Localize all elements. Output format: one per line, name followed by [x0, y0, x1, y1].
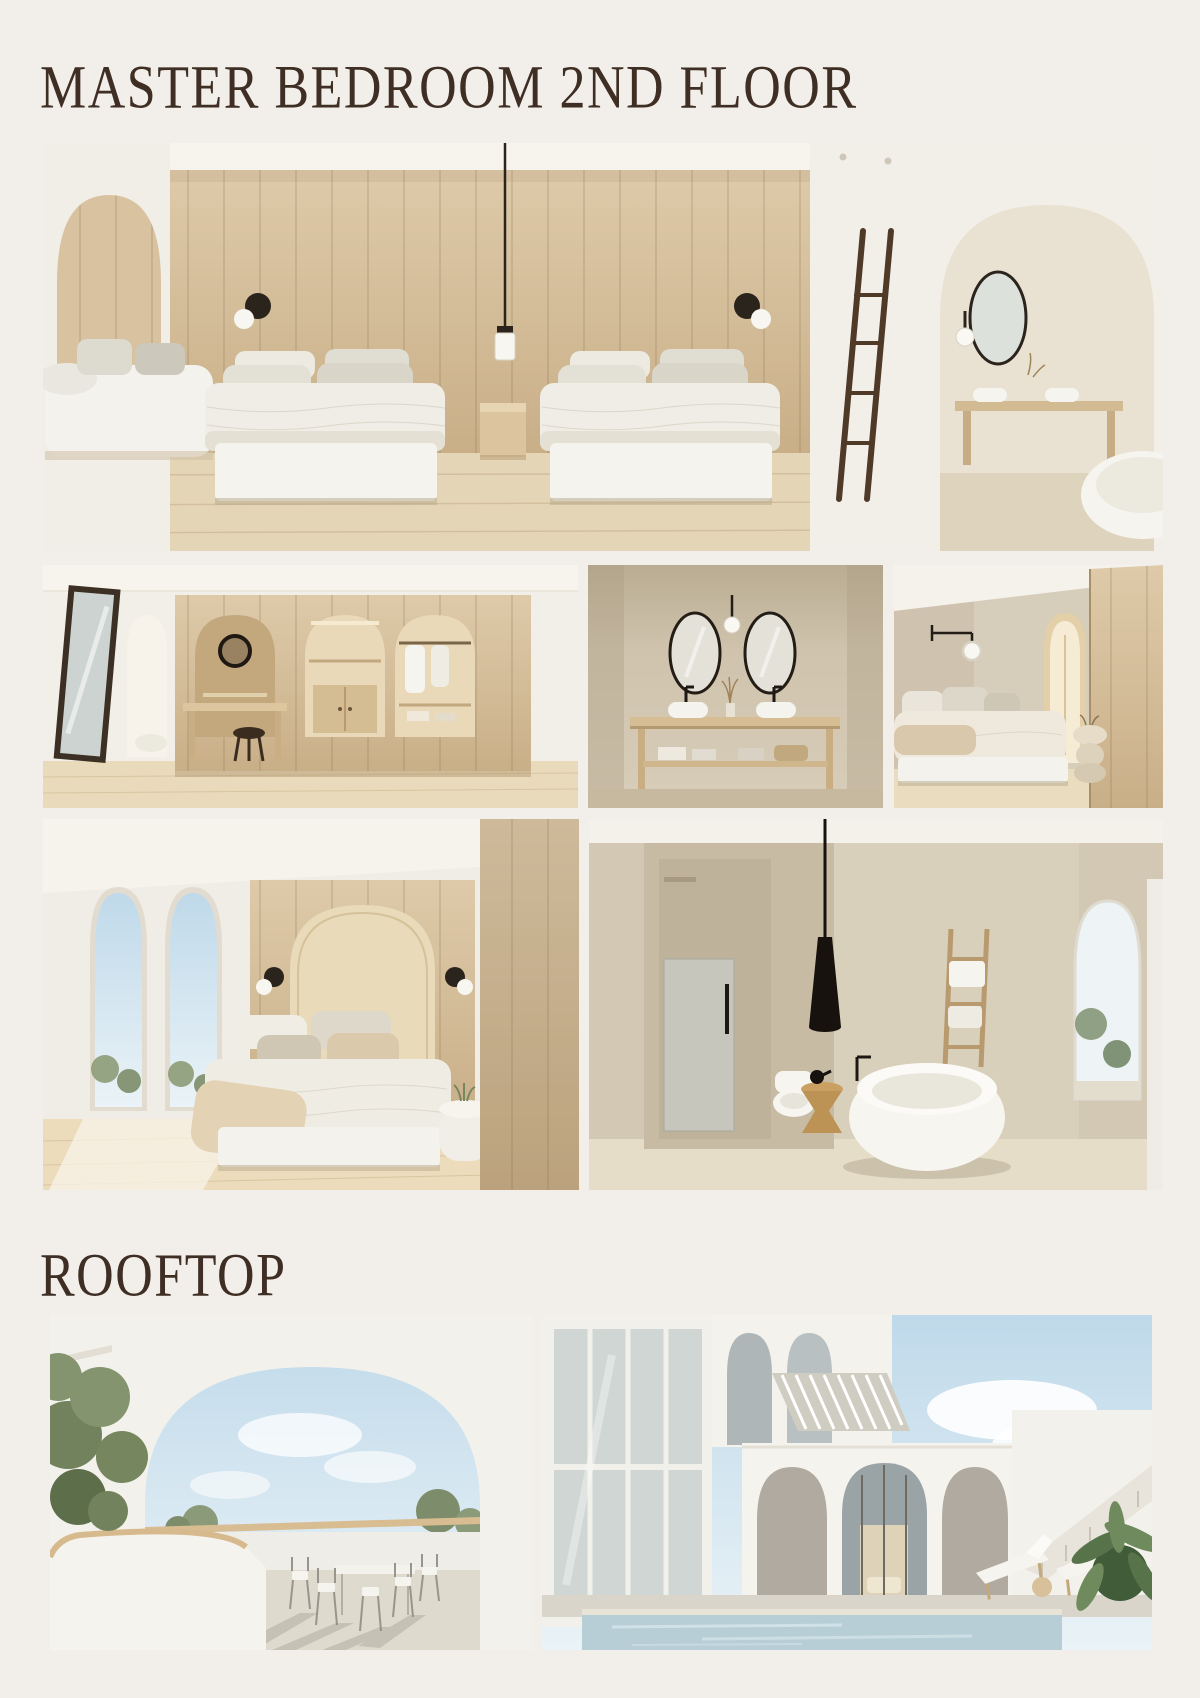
pool: [582, 1609, 1062, 1650]
floor: [588, 789, 883, 808]
dressing-scene: [43, 565, 578, 808]
basin: [1045, 388, 1079, 402]
ceiling: [43, 565, 578, 591]
stucco-wall: [588, 565, 883, 808]
vanity-counter: [955, 401, 1123, 411]
arched-doorway: [127, 615, 167, 757]
oval-mirror-left: [670, 613, 720, 693]
upper-arches: [712, 1315, 910, 1447]
render-dressing-room: [43, 565, 578, 808]
bed-right: [540, 349, 780, 505]
presentation-page: MASTER BEDROOM 2ND FLOOR: [0, 0, 1200, 1698]
round-mirror: [220, 636, 250, 666]
stone-arch: [757, 1467, 827, 1615]
foreground-wood-wall: [480, 819, 579, 1190]
wardrobe-cabinet: [175, 595, 531, 777]
planter-wall: [50, 1531, 266, 1650]
render-bedroom-arched-windows: [43, 819, 579, 1190]
glass-door-arch: [842, 1463, 927, 1615]
hanging-robe: [405, 645, 425, 693]
arched-garden-window: [1075, 901, 1140, 1099]
basket: [774, 745, 808, 761]
hero-scene: [43, 143, 1163, 551]
oval-mirror: [970, 272, 1026, 364]
towel: [948, 1006, 982, 1028]
folded-towels: [658, 747, 686, 760]
folded-towels: [692, 749, 716, 760]
bathroom-scene: [589, 819, 1163, 1190]
vanity-desk: [183, 703, 287, 711]
side-table: [1032, 1577, 1052, 1597]
vanity-niche: [195, 615, 275, 737]
section-title-master-bedroom: MASTER BEDROOM 2ND FLOOR: [40, 58, 858, 119]
glazed-facade: [542, 1315, 712, 1627]
render-rooftop-terrace: [50, 1315, 532, 1650]
archbed-scene: [43, 819, 579, 1190]
arched-pavilion: [742, 1443, 1012, 1615]
render-rooftop-pool: [542, 1315, 1152, 1650]
arched-window-left: [90, 887, 147, 1111]
arch-edge: [1147, 879, 1163, 1190]
wall-sconce-globe: [956, 328, 974, 346]
render-hero-twin-bedroom: [43, 143, 1163, 551]
stone-arch: [942, 1467, 1008, 1615]
towel: [949, 961, 985, 987]
folded-towels: [738, 748, 764, 760]
ceiling: [589, 819, 1163, 843]
terrace-scene: [50, 1315, 532, 1650]
bedcorner-scene: [894, 565, 1163, 808]
round-bathtub: [843, 1057, 1011, 1179]
basin: [973, 388, 1007, 402]
arched-bathroom-opening: [810, 143, 1163, 551]
nightstand: [480, 403, 526, 460]
pool-scene: [542, 1315, 1152, 1650]
bed-left: [205, 349, 445, 505]
shower-glass: [664, 959, 734, 1131]
hanging-robe: [431, 645, 449, 687]
oval-mirror-right: [745, 613, 795, 693]
shower-partition: [644, 843, 834, 1149]
section-title-rooftop: ROOFTOP: [40, 1246, 287, 1307]
vanity-scene: [588, 565, 883, 808]
tub-glimpse: [135, 734, 167, 752]
render-bathroom-tub: [589, 819, 1163, 1190]
render-bedroom-corner: [894, 565, 1163, 808]
render-vanity-bathroom: [588, 565, 883, 808]
